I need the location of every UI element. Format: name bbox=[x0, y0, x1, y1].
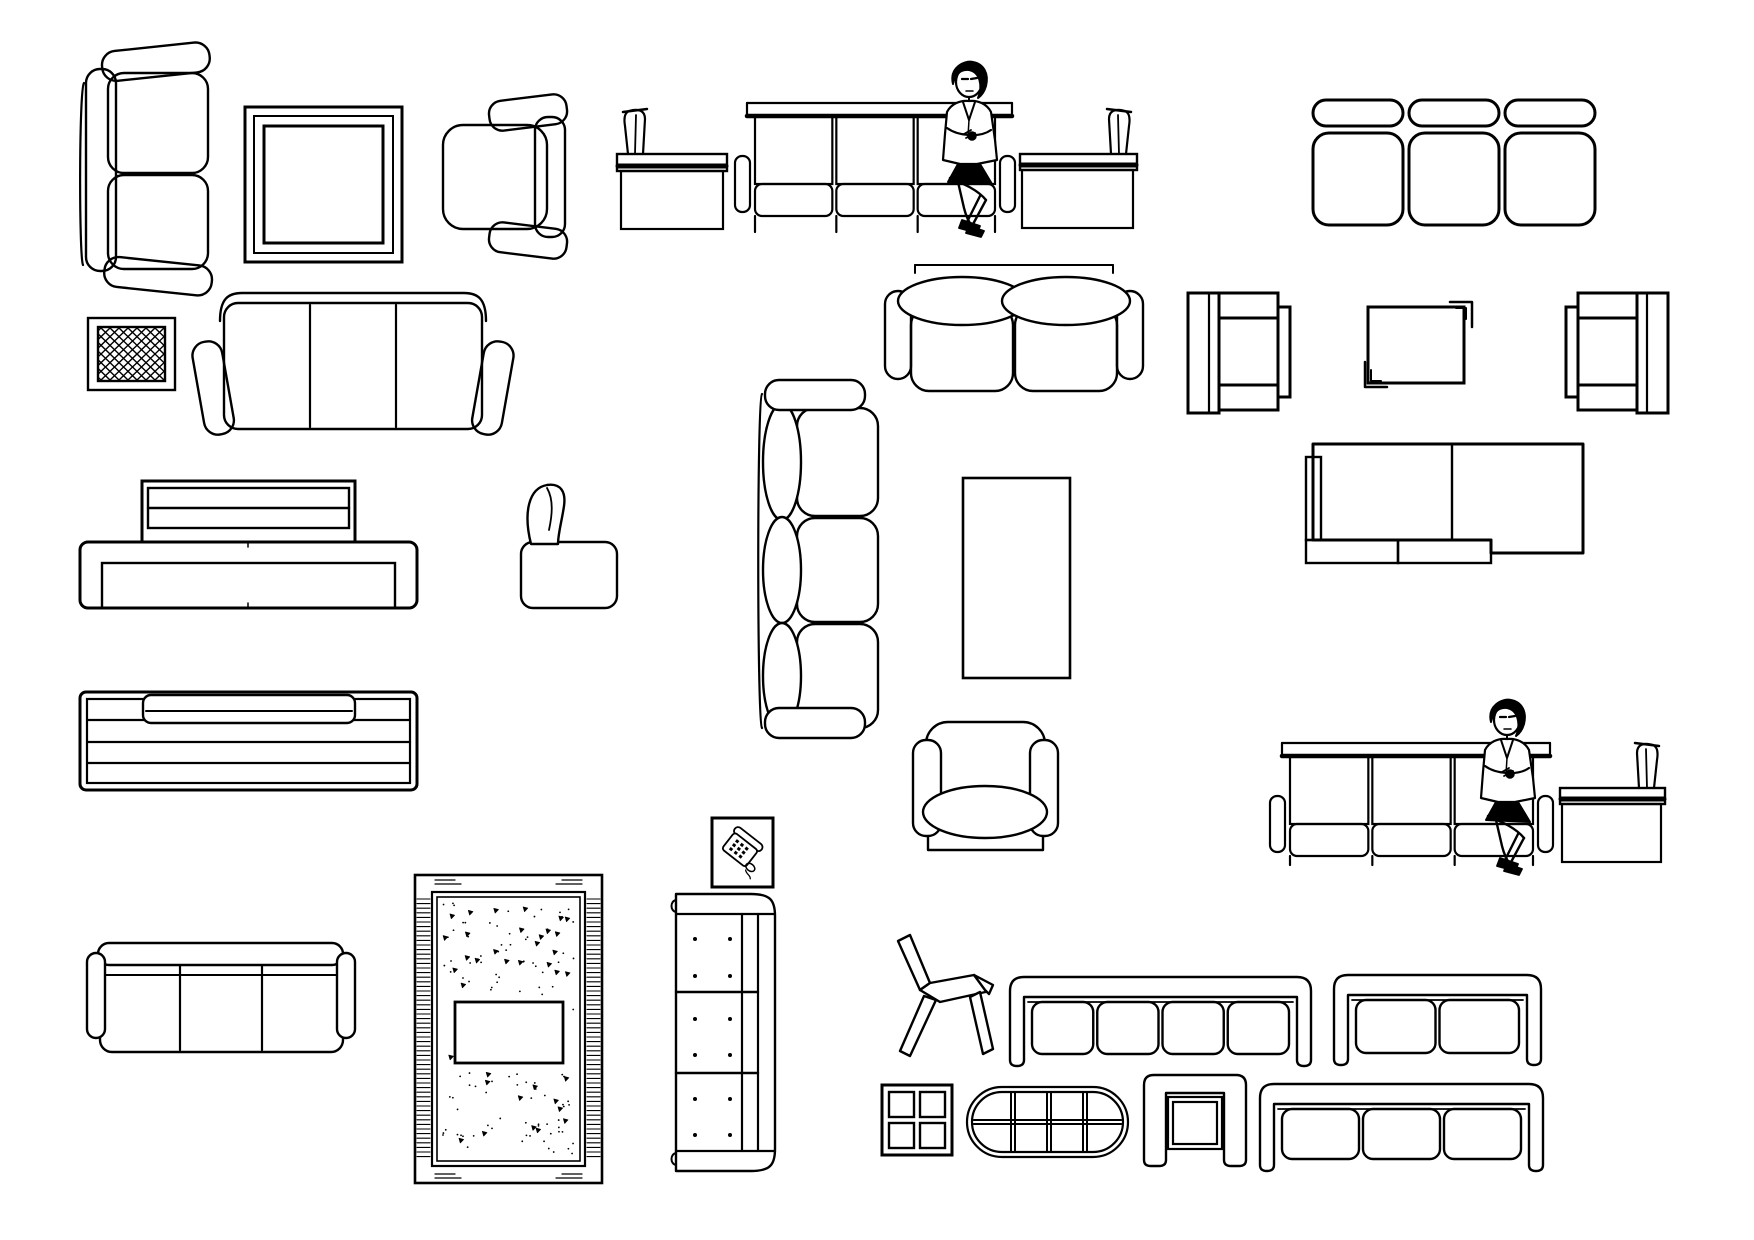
sofa-3seat-plan-small bbox=[87, 943, 355, 1052]
waiting-chair-elevation-right-bottom bbox=[1560, 743, 1665, 862]
sofa-3seat-plan-no-arms bbox=[1313, 100, 1595, 225]
sofa-2seat-plan-frame bbox=[1334, 975, 1541, 1065]
side-table-4pane bbox=[882, 1085, 952, 1155]
sofa-3seat-plan-frame bbox=[1260, 1084, 1543, 1171]
club-chair-plan-small bbox=[521, 485, 617, 608]
sofa-2seat-plan-vertical bbox=[80, 41, 213, 297]
area-rug bbox=[415, 875, 602, 1183]
furniture-blocks-sheet bbox=[0, 0, 1754, 1240]
armchair-plan-facing-left bbox=[443, 93, 569, 260]
corner-bracket-table bbox=[1365, 302, 1472, 387]
sofa-3seat-plan-vertical bbox=[758, 380, 878, 738]
armchair-schematic-facing-right bbox=[1188, 293, 1290, 413]
sofa-3seat-plan-arms bbox=[190, 293, 516, 437]
armchair-plan-front bbox=[913, 722, 1058, 850]
rectangular-coffee-table bbox=[963, 478, 1070, 678]
loveseat-plan-oval-backs bbox=[885, 265, 1143, 391]
seated-woman-top bbox=[943, 62, 997, 237]
seated-woman-bottom bbox=[1481, 700, 1535, 875]
waiting-chair-elevation-right-top bbox=[1020, 109, 1137, 228]
waiting-chair-elevation-left bbox=[617, 109, 727, 229]
sofa-3seat-plan-tufted-vertical bbox=[672, 894, 776, 1171]
cad-drawing-canvas bbox=[0, 0, 1754, 1240]
sofa-back-elevation-striped bbox=[80, 692, 417, 790]
lattice-panel bbox=[38, 318, 227, 390]
sofa-back-elevation-headrest bbox=[80, 481, 417, 608]
modular-sofa-schematic bbox=[1306, 444, 1583, 563]
oval-coffee-table bbox=[967, 1087, 1128, 1157]
square-side-table bbox=[245, 107, 402, 262]
lounge-chair-side-view bbox=[898, 935, 993, 1056]
armchair-schematic-facing-left bbox=[1566, 293, 1668, 413]
sofa-4seat-plan-frame bbox=[1010, 977, 1311, 1066]
nesting-console-table bbox=[1144, 1075, 1246, 1166]
telephone-symbol bbox=[712, 818, 773, 887]
